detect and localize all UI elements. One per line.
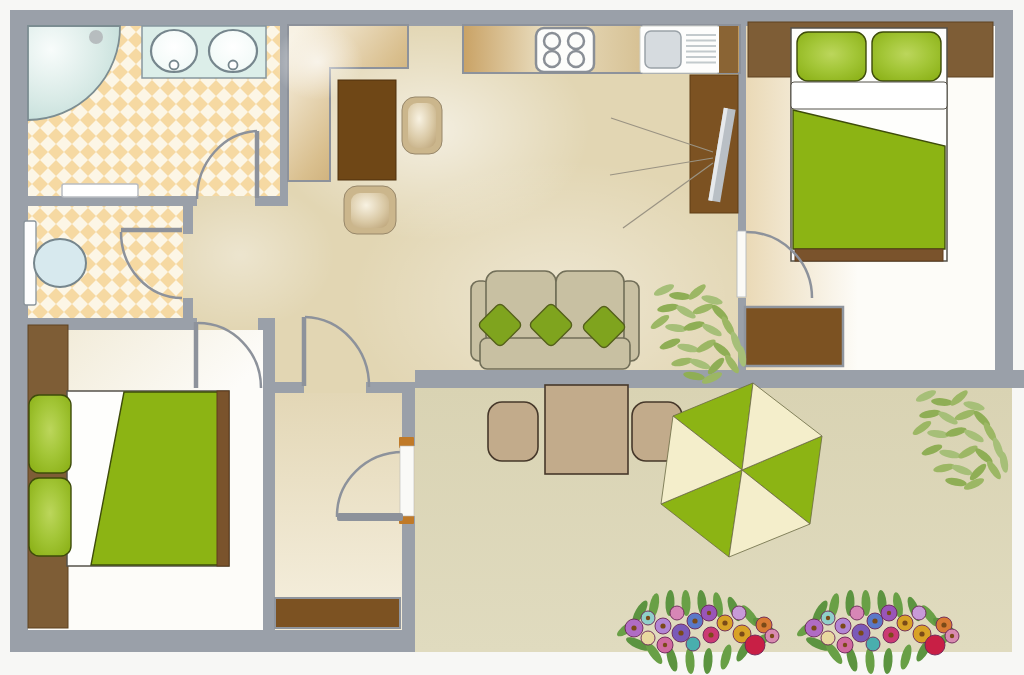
outer-wall-bottom [10,630,415,652]
terrace-chair [488,402,538,461]
toilet-bowl [34,239,86,287]
sofa-pillows [477,302,626,349]
entrance-door-panel [400,446,414,516]
terrace-table [545,385,628,474]
master-bedroom-door-panel [737,231,746,297]
floor-plan-page [0,0,1024,675]
sink-drain [229,61,238,70]
floor-plan-drawing [0,0,1024,675]
entrance-hall-floor [275,393,402,630]
bed-pillow [797,32,866,81]
bathroom-bottom-wall [255,196,288,206]
kitchen-sink-basin [645,31,681,68]
bed-pillow [872,32,941,81]
bath-mat [62,184,138,197]
bed-footboard [217,391,229,566]
bed-footboard [795,249,943,261]
hall-terrace-wall [402,516,415,630]
dining-chair [344,186,396,234]
toilet-right-wall [183,206,193,234]
toilet-right-wall [183,298,193,320]
outer-wall-left [10,10,28,652]
bed-pillow [29,478,71,556]
counter-end-cabinet [719,26,738,73]
bed-pillow [29,395,71,473]
dining-chair [402,97,442,154]
entrance-door-leaf [337,513,403,521]
hall-terrace-wall [402,382,415,446]
dining-table [338,80,396,180]
living-hall-wall [275,382,304,393]
outer-wall-right [995,10,1013,388]
bathtub-drain [89,30,103,44]
bed-sheet-fold [791,82,947,109]
entrance-hall [275,598,400,628]
headboard [28,325,68,628]
sink-drain [170,61,179,70]
dresser [745,307,843,366]
bedroom-hall-wall [263,318,275,630]
sideboard [275,598,400,628]
stove [536,28,594,72]
